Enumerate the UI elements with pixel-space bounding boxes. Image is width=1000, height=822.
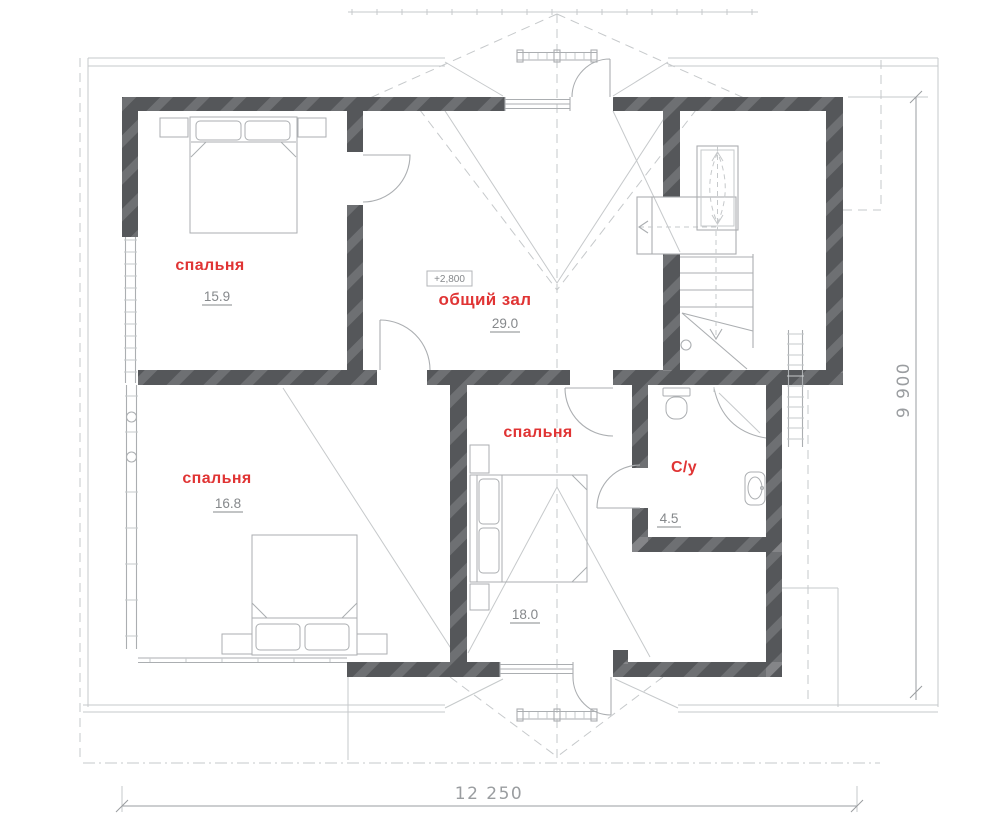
door-bedroom-bottom-left — [380, 320, 430, 370]
window-left-upper — [124, 237, 137, 383]
shower-icon — [714, 387, 766, 438]
room-name-bedroom-bottom-middle: спальня — [503, 424, 572, 441]
shaft-symbol — [697, 146, 738, 230]
door-balcony-top — [572, 59, 610, 97]
bed-top-left-icon — [160, 117, 326, 233]
floor-plan-drawing: спальня 15.9 общий зал 29.0 спальня 16.8… — [0, 0, 1000, 822]
window-left-lower — [125, 385, 138, 649]
room-labels: спальня 15.9 общий зал 29.0 спальня 16.8… — [175, 257, 697, 623]
toilet-icon — [663, 388, 690, 419]
door-bedroom-top-left — [363, 155, 410, 202]
doors — [363, 59, 640, 715]
elevation-value: +2,800 — [434, 274, 465, 285]
room-name-bedroom-bottom-left: спальня — [182, 470, 251, 487]
staircase — [637, 197, 753, 369]
room-name-bathroom: С/у — [671, 459, 697, 476]
door-bathroom — [597, 465, 640, 508]
roof-outline — [80, 9, 938, 763]
dimension-right-value: 9 900 — [894, 362, 914, 418]
window-bottom-left — [138, 658, 347, 663]
dormer-ridge-line — [348, 9, 758, 15]
room-name-hall: общий зал — [439, 290, 532, 309]
room-area-bedroom-bottom-middle: 18.0 — [512, 607, 538, 622]
floor-plan-canvas: спальня 15.9 общий зал 29.0 спальня 16.8… — [0, 0, 1000, 822]
room-area-hall: 29.0 — [492, 316, 518, 331]
window-bottom-dormer — [500, 662, 573, 677]
walls — [122, 97, 843, 677]
sink-icon — [745, 472, 765, 505]
bathroom-fixtures — [663, 387, 766, 505]
window-top-dormer — [505, 97, 570, 111]
room-area-bedroom-top-left: 15.9 — [204, 289, 230, 304]
roof-slope-bedroom — [468, 487, 650, 657]
dimension-bottom-value: 12 250 — [455, 784, 523, 804]
windows — [124, 97, 573, 677]
elevation-marker: +2,800 — [427, 271, 472, 286]
bed-bottom-left-icon — [222, 535, 387, 655]
roof-ladder-icon — [787, 330, 804, 447]
room-area-bedroom-bottom-left: 16.8 — [215, 496, 241, 511]
dimension-right: 9 900 — [848, 91, 928, 700]
room-area-bathroom: 4.5 — [660, 511, 679, 526]
room-name-bedroom-top-left: спальня — [175, 257, 244, 274]
dimension-bottom: 12 250 — [116, 784, 863, 812]
bed-bottom-middle-icon — [470, 445, 587, 610]
